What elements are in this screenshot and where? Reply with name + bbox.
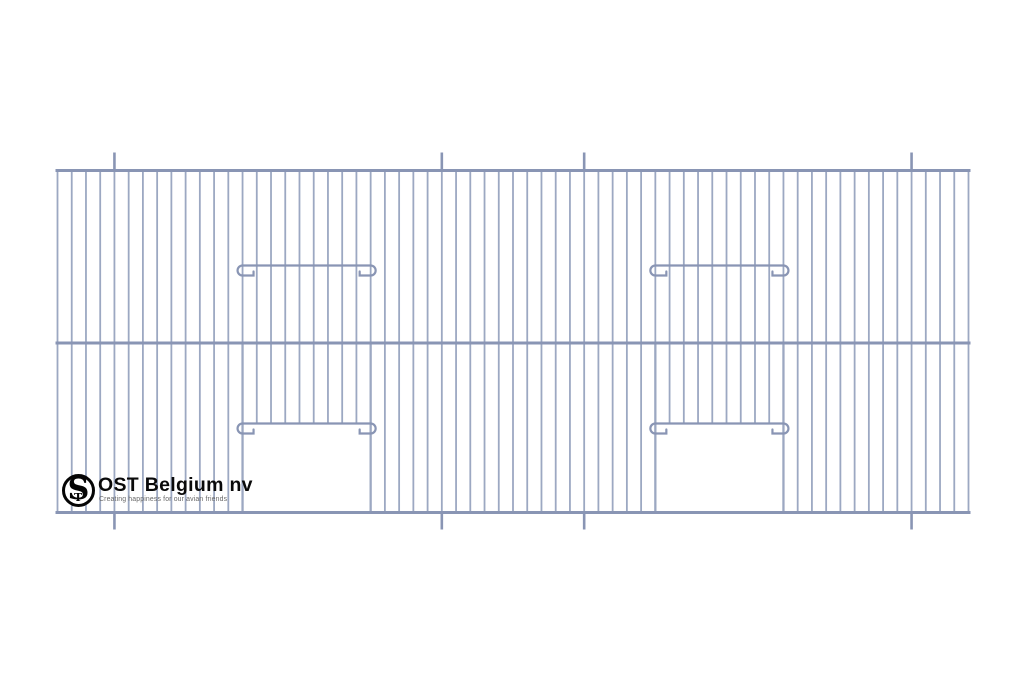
brand-logo-mark: S T [62,474,95,507]
product-drawing-page: S T OST Belgium nv Creating happiness fo… [0,0,1024,683]
brand-tagline: Creating happiness for our avian friends [99,497,227,504]
brand-name: OST Belgium nv [98,476,253,496]
logo-letter-t: T [74,492,82,503]
cage-front-panel-drawing [0,0,1024,683]
